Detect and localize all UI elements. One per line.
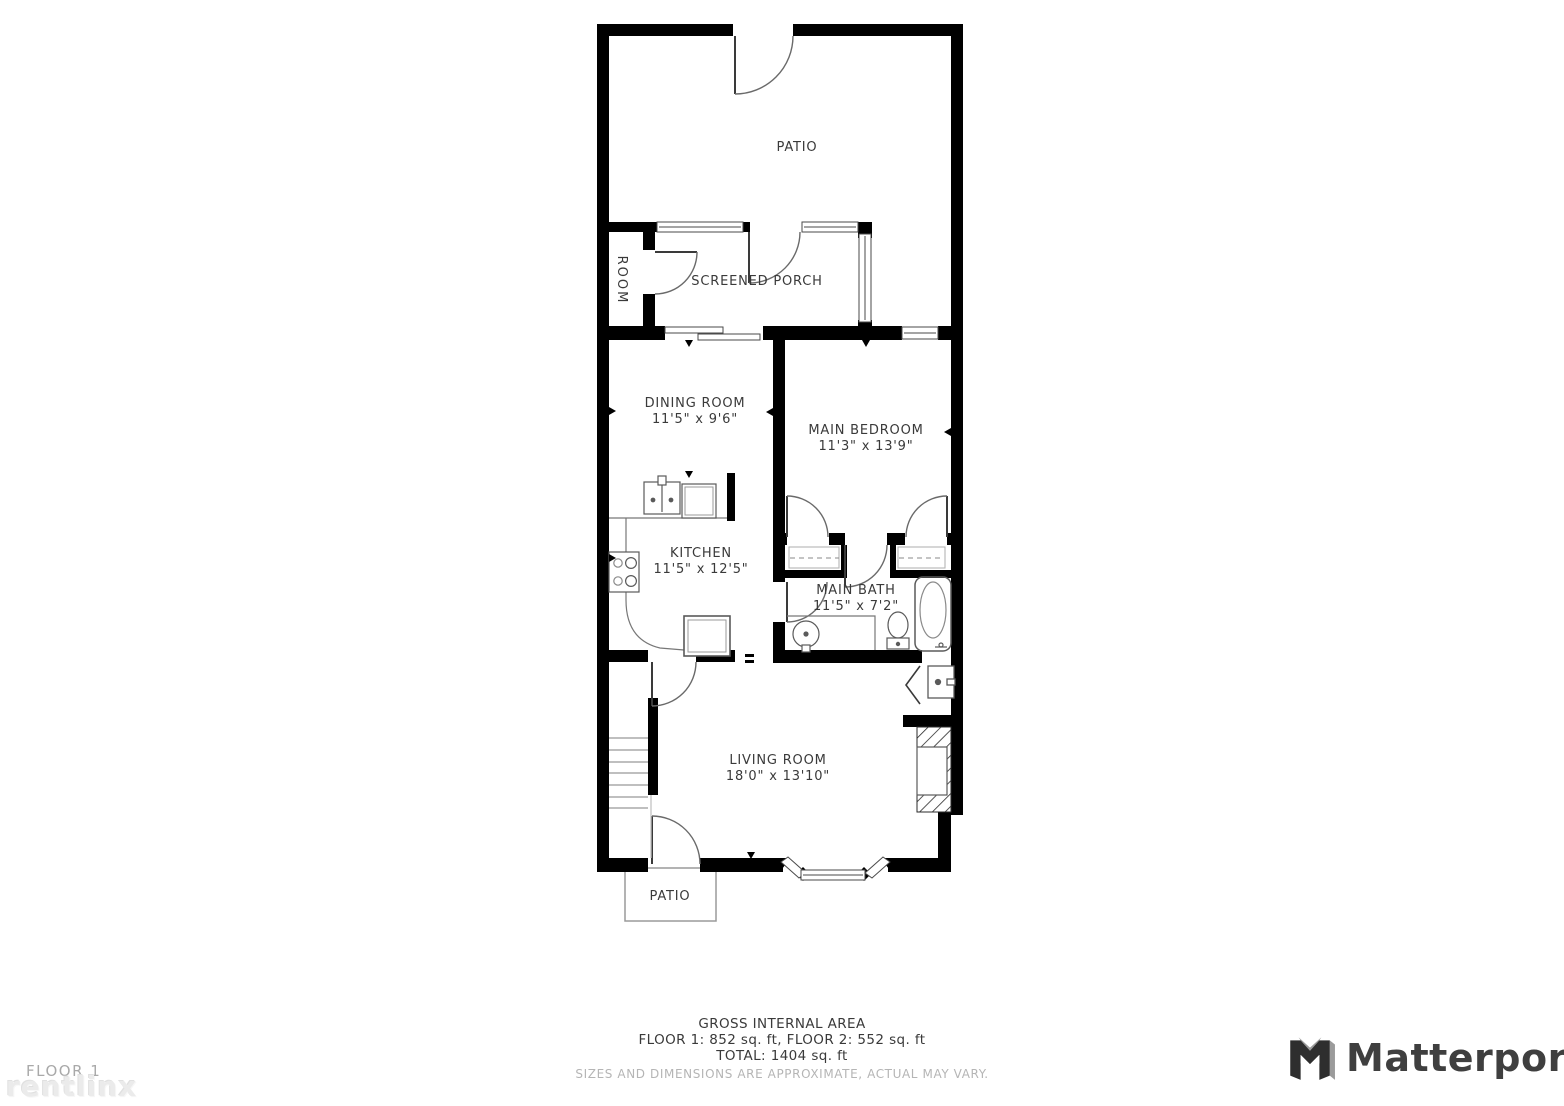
room-label-main-bath: MAIN BATH 11'5" x 7'2" [813, 583, 899, 615]
room-name: ROOM [614, 256, 629, 305]
room-name: MAIN BEDROOM [808, 423, 923, 439]
room-name: MAIN BATH [813, 583, 899, 599]
matterport-logo-icon [1284, 1032, 1336, 1084]
room-name: KITCHEN [653, 546, 748, 562]
room-label-patio-top: PATIO [777, 140, 818, 156]
room-dimensions: 11'5" x 7'2" [813, 599, 899, 615]
room-name: PATIO [650, 889, 691, 904]
room-name: DINING ROOM [645, 396, 746, 412]
water-heater [928, 666, 955, 698]
room-name: PATIO [777, 140, 818, 155]
room-label-room: ROOM [613, 256, 629, 305]
room-dimensions: 11'5" x 9'6" [645, 412, 746, 428]
room-label-dining-room: DINING ROOM 11'5" x 9'6" [645, 396, 746, 428]
matterport-brand: Matterport [1284, 1032, 1564, 1084]
closet-rails [789, 547, 945, 568]
room-label-patio-bottom: PATIO [650, 889, 691, 905]
room-label-main-bedroom: MAIN BEDROOM 11'3" x 13'9" [808, 423, 923, 455]
room-label-kitchen: KITCHEN 11'5" x 12'5" [653, 546, 748, 578]
room-label-living-room: LIVING ROOM 18'0" x 13'10" [726, 753, 830, 785]
matterport-wordmark: Matterport [1346, 1036, 1564, 1080]
room-name: SCREENED PORCH [691, 274, 822, 289]
gross-internal-area-title: GROSS INTERNAL AREA [0, 1016, 1564, 1032]
room-label-screened-porch: SCREENED PORCH [691, 274, 822, 290]
floor-plan-page: PATIO ROOM SCREENED PORCH DINING ROOM 11… [0, 0, 1564, 1106]
fireplace [917, 727, 951, 812]
room-dimensions: 11'3" x 13'9" [808, 439, 923, 455]
stairs [609, 738, 651, 858]
floor-plan-drawing [0, 0, 1564, 1106]
room-name: LIVING ROOM [726, 753, 830, 769]
room-dimensions: 11'5" x 12'5" [653, 562, 748, 578]
rentlinx-watermark: rentlinx [6, 1070, 137, 1103]
room-dimensions: 18'0" x 13'10" [726, 769, 830, 785]
